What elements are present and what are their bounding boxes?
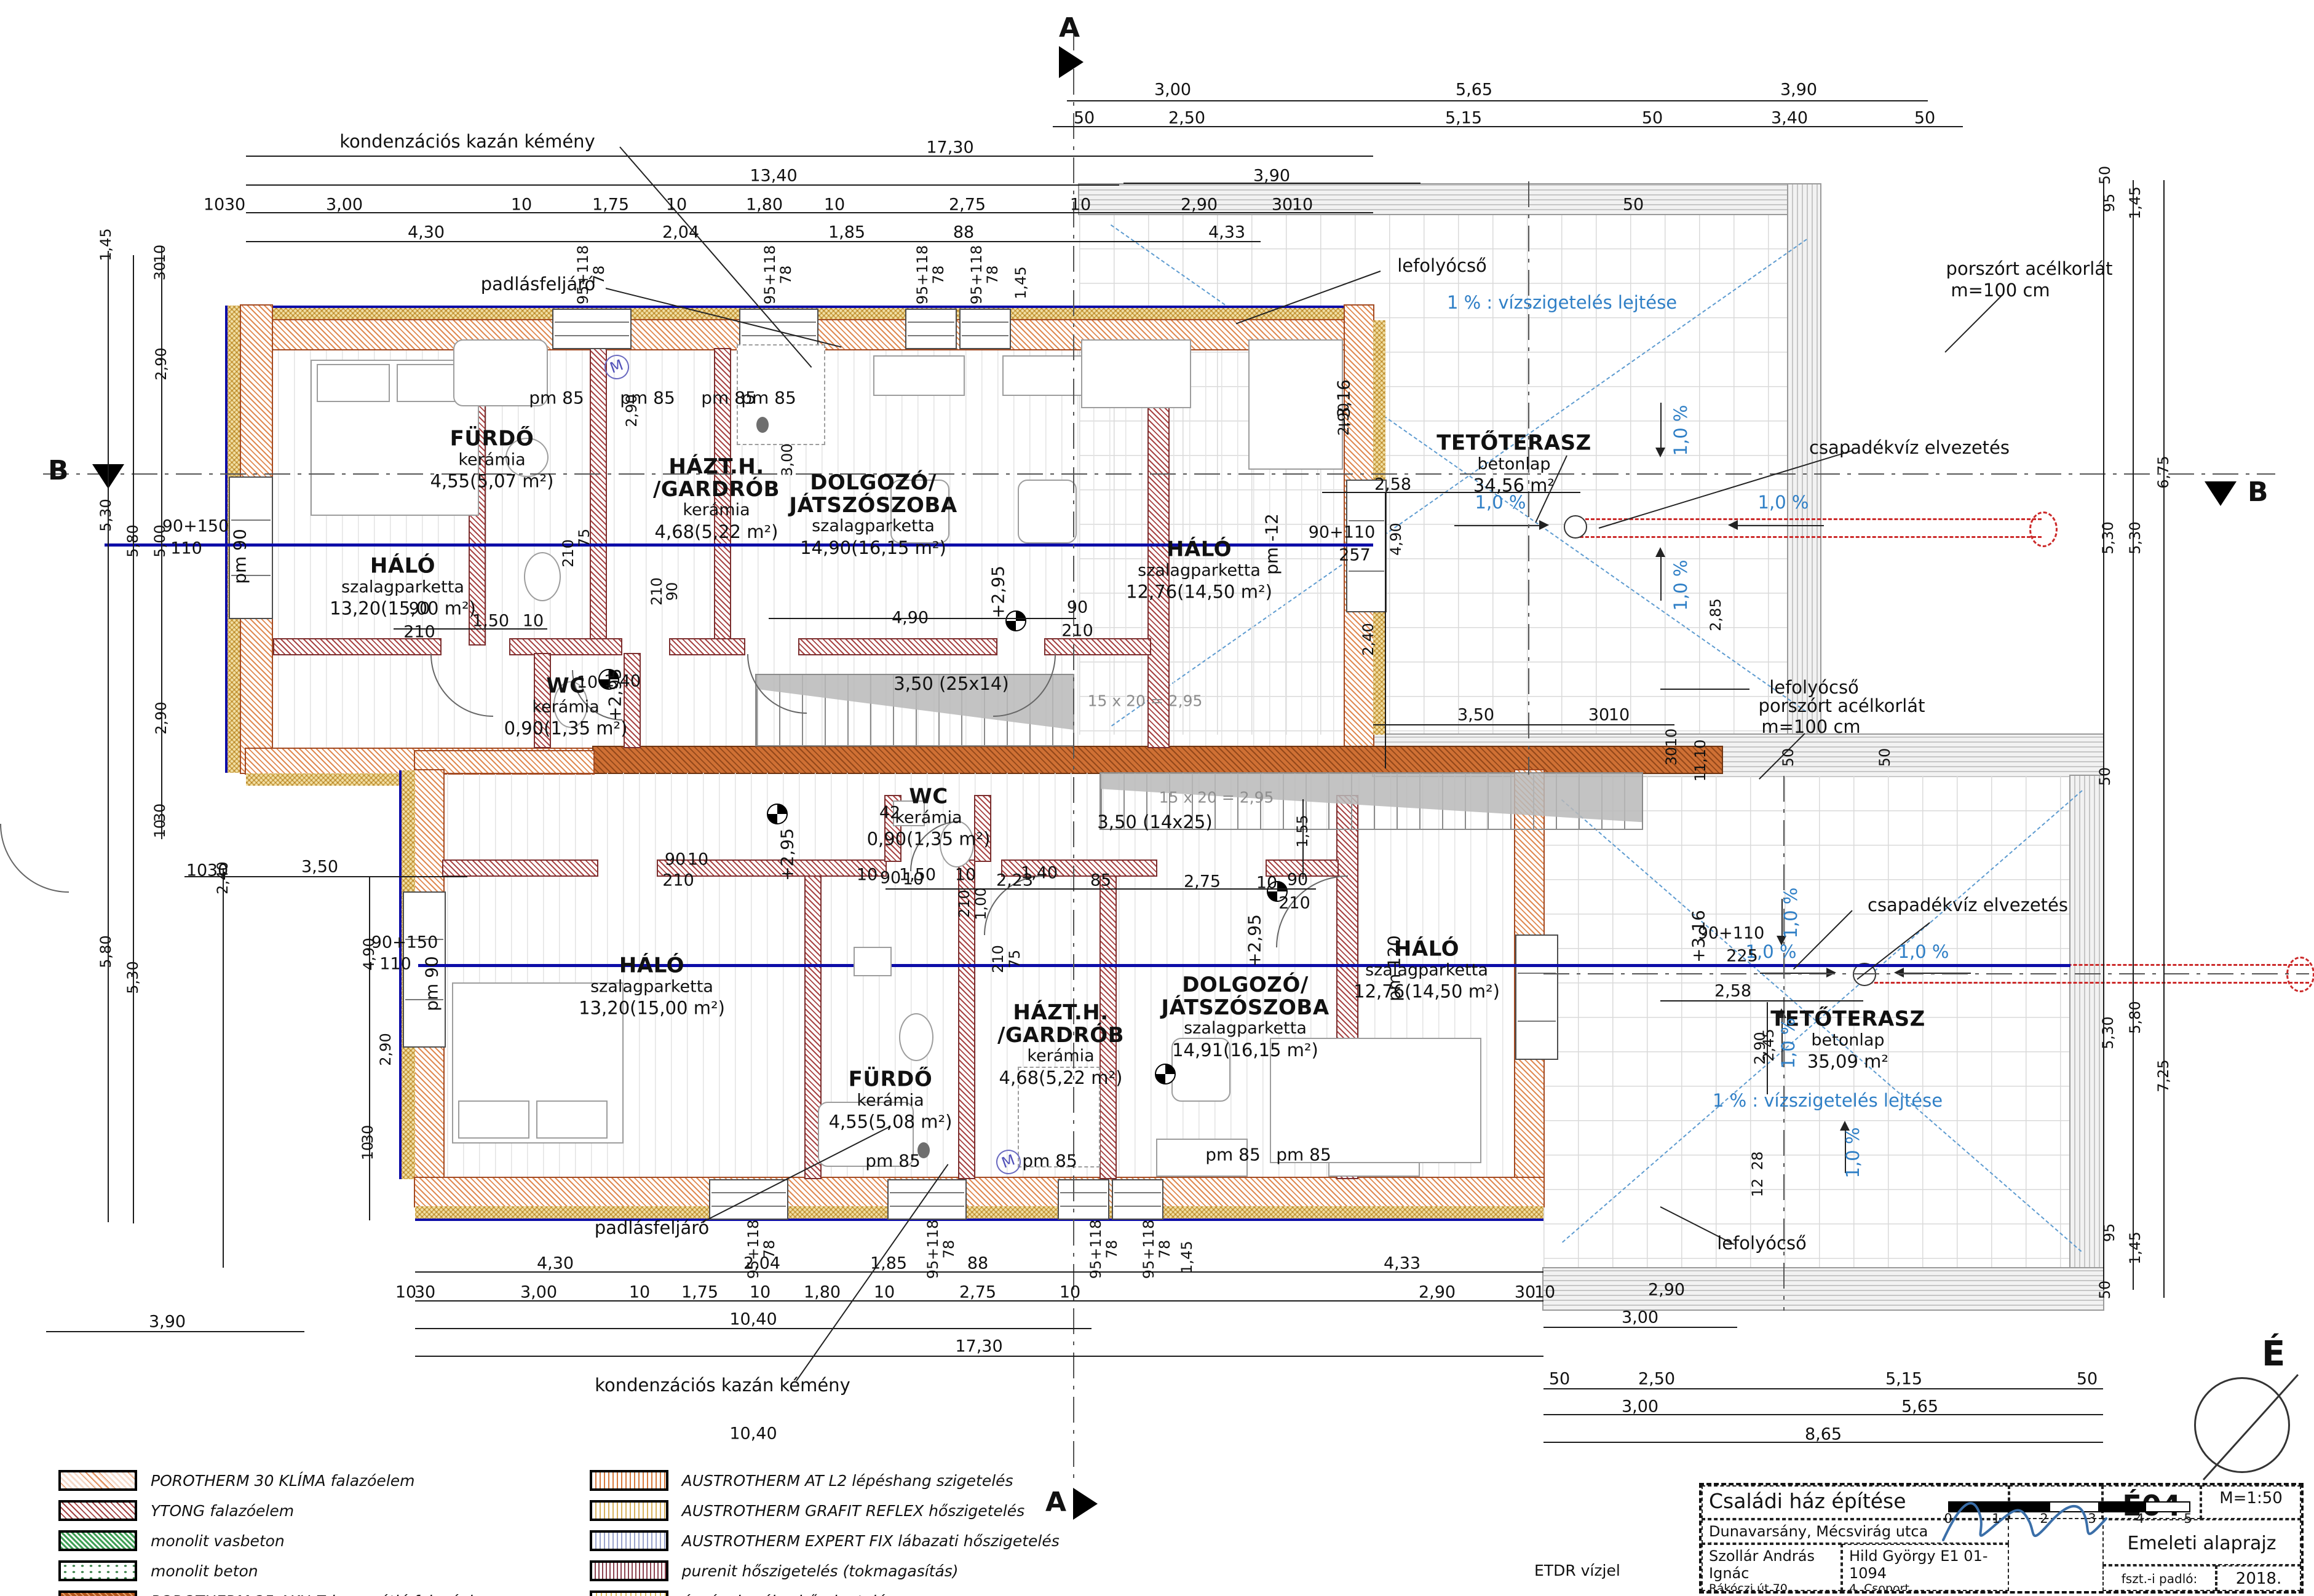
anno-label: lefolyócső <box>1769 677 1859 698</box>
dimension-label: 75 <box>1006 950 1023 969</box>
dimension-label: 1,45 <box>97 228 114 261</box>
dimension-label: 1,85 <box>828 223 865 242</box>
dimension-label: 30 <box>359 1125 376 1144</box>
dimension-label: 10 <box>511 196 532 215</box>
anno-label: 3,50 (25x14) <box>894 673 1008 694</box>
arr <box>1655 448 1665 457</box>
tri <box>1073 1488 1098 1520</box>
dimension-label: 78 <box>1156 1240 1173 1259</box>
blue-label: 1,0 % <box>1758 492 1809 513</box>
tri <box>1059 46 1084 78</box>
hl <box>246 184 1119 186</box>
section-marker-a-top: A <box>1059 12 1080 44</box>
legend-swatch-expertfix <box>590 1530 668 1551</box>
anno-label: kondenzációs kazán kémény <box>339 131 595 152</box>
lg-col: AUSTROTHERM AT L2 lépéshang szigetelésAU… <box>590 1468 1060 1596</box>
legend-item: monolit vasbeton <box>58 1528 497 1553</box>
room-label: DOLGOZÓ/ JÁTSZÓSZOBAszalagparketta14,91(… <box>1161 974 1329 1061</box>
dimension-label: 1,80 <box>804 1283 841 1302</box>
blue-label: 1,0 % <box>1842 1128 1863 1179</box>
dimension-label: 10 <box>1060 1283 1080 1302</box>
dimension-label: 30 <box>151 262 168 281</box>
scalebar-number: 1 <box>1992 1511 2000 1526</box>
scale-bar <box>1948 1501 2190 1512</box>
dimension-label: 3,00 <box>1622 1308 1658 1327</box>
sheet-title: Emeleti alaprajz <box>2102 1519 2301 1565</box>
pm-label: pm 85 <box>1205 1145 1261 1165</box>
legend-label: purenit hőszigetelés (tokmagasítás) <box>682 1562 959 1580</box>
dimension-label: 10 <box>359 1142 376 1161</box>
gray-label: 15 x 20 = 2,95 <box>1159 789 1274 807</box>
dimension-label: 5,30 <box>124 961 141 994</box>
arrln-v <box>1660 556 1662 601</box>
survey-marker <box>767 804 788 824</box>
blue-label: 1 % : vízszigetelés lejtése <box>1713 1090 1943 1111</box>
dimension-label: 10 <box>151 820 168 839</box>
dimension-label: 50 <box>1914 109 1935 128</box>
dimension-label: 95+118 <box>914 245 931 304</box>
legend-swatch-atl2 <box>590 1470 668 1491</box>
arrln-h <box>1738 525 1824 526</box>
dimension-label: 17,30 <box>926 138 973 157</box>
pm-label: pm 90 <box>230 529 250 584</box>
dimension-label: 1,45 <box>2126 186 2144 219</box>
watermark-label: ETDR vízjel <box>1534 1562 1620 1579</box>
dimension-label: 2,85 <box>1707 598 1724 631</box>
arr <box>1539 520 1549 530</box>
dimension-label: 2,90 <box>153 347 170 380</box>
dimension-label: 4,30 <box>537 1254 574 1273</box>
blue-label: 1,0 % <box>1780 888 1801 939</box>
architect-firm: 4. Csoport Építészműterem Kft. <box>1849 1582 2002 1591</box>
room-area: 4,68(5,22 m²) <box>653 521 780 543</box>
pm-label: pm 85 <box>529 388 584 408</box>
client-info: Szollár András Ignác Rákóczi út 70. Buda… <box>1702 1544 1842 1591</box>
architect-info: Hild György E1 01-1094 4. Csoport Építés… <box>1842 1544 2009 1591</box>
anno-label: porszórt acélkorlát <box>1946 258 2113 279</box>
legend-label: AUSTROTHERM EXPERT FIX lábazati hősziget… <box>682 1532 1060 1550</box>
dimension-label: 90 <box>1287 871 1308 890</box>
dimension-label: 2,50 <box>1168 109 1205 128</box>
room-finish: szalagparketta <box>789 516 957 536</box>
dimension-label: 10 <box>903 870 924 889</box>
dimension-label: 30 <box>1272 196 1293 215</box>
wardrobe <box>1248 339 1343 470</box>
vl <box>1385 492 1386 768</box>
dimension-label: 95+118 <box>924 1220 941 1279</box>
room-name: HÁLÓ <box>1126 538 1272 561</box>
redln <box>1863 982 2309 984</box>
sheet-date: 2018. 12. 17. <box>2216 1565 2301 1591</box>
dimension-label: 50 <box>1780 748 1797 767</box>
terrace-drain <box>1564 515 1587 539</box>
room-name: FÜRDŐ <box>430 427 554 450</box>
sheet-scale: M=1:50 <box>2201 1485 2301 1519</box>
room-label: HÁLÓszalagparketta13,20(15,00 m²) <box>579 954 725 1019</box>
bluln <box>415 1219 1543 1221</box>
arrln-v <box>1660 403 1662 449</box>
anno-label: csapadékvíz elvezetés <box>1809 437 2010 458</box>
chair <box>1018 480 1077 543</box>
dimension-label: 210 <box>662 871 694 890</box>
dimension-label: 2,90 <box>153 701 170 734</box>
desk <box>873 355 965 396</box>
legend-item: AUSTROTHERM EXPERT FIX lábazati hősziget… <box>590 1528 1060 1553</box>
dimension-label: 1,55 <box>1294 815 1311 847</box>
dimension-label: 1,00 <box>972 887 989 920</box>
blue-label: 1,0 % <box>1898 941 1949 962</box>
dimension-label: 5,80 <box>124 524 141 557</box>
dimension-label: 10 <box>874 1283 895 1302</box>
dimension-label: 1,75 <box>592 196 629 215</box>
blue-label: 1 % : vízszigetelés lejtése <box>1447 292 1677 313</box>
pm-label: pm 120 <box>1384 935 1405 1001</box>
room-label: HÁZT.H. /GARDRÓBkerámia4,68(5,22 m²) <box>653 456 780 543</box>
dimension-label: 78 <box>930 266 947 285</box>
dimension-label: 10 <box>1256 874 1277 893</box>
dimension-label: 75 <box>576 529 593 548</box>
dimension-label: 90+110 <box>1309 523 1376 542</box>
dimension-label: 3,50 <box>1457 706 1494 725</box>
dimension-label: 28 <box>1749 1152 1766 1171</box>
room-label: FÜRDŐkerámia4,55(5,07 m²) <box>430 427 554 492</box>
dimension-label: 1,50 <box>472 612 509 631</box>
arr <box>1655 547 1665 557</box>
dimension-label: 90 <box>665 850 686 869</box>
anno-label: lefolyócső <box>1717 1233 1807 1254</box>
legend-label: POROTHERM 25 AKU Z hanggátló falazóelem <box>151 1592 497 1596</box>
scalebar-number: 2 <box>2040 1511 2048 1526</box>
dimension-label: 5,30 <box>2126 521 2144 554</box>
hl <box>1543 1388 2103 1389</box>
legend-item: POROTHERM 30 KLÍMA falazóelem <box>58 1468 497 1493</box>
room-finish: szalagparketta <box>1126 561 1272 580</box>
dimension-label: 2,40 <box>1360 623 1377 655</box>
dimension-label: 2,75 <box>1184 872 1221 891</box>
vl <box>133 255 134 1223</box>
hl <box>246 156 1373 157</box>
dimension-label: 5,30 <box>2099 521 2117 554</box>
dimension-label: 210 <box>560 539 577 567</box>
dimension-label: 5,65 <box>1456 81 1492 100</box>
dimension-label: 3,90 <box>1253 167 1290 186</box>
dimension-label: 88 <box>953 223 974 242</box>
dimension-label: 78 <box>590 266 608 285</box>
north-symbol: É <box>2189 1334 2312 1482</box>
dimension-label: 2,58 <box>1374 475 1411 494</box>
legend-item: POROTHERM 25 AKU Z hanggátló falazóelem <box>58 1589 497 1596</box>
dimension-label: 2,23 <box>996 871 1033 890</box>
dimension-label: 30 <box>1515 1283 1535 1302</box>
room-label: HÁLÓszalagparketta12,76(14,50 m²) <box>1126 538 1272 602</box>
room-label: FÜRDŐkerámia4,55(5,08 m²) <box>829 1068 953 1132</box>
dimension-label: 3,90 <box>149 1313 186 1332</box>
dimension-label: 10 <box>666 196 687 215</box>
room-finish: szalagparketta <box>330 577 476 597</box>
dimension-label: 2,90 <box>1335 403 1352 435</box>
pm-label: pm 85 <box>1022 1151 1077 1171</box>
dimension-label: 3,90 <box>1780 81 1817 100</box>
room-name: HÁZT.H. /GARDRÓB <box>653 456 780 500</box>
dimension-label: 3,00 <box>520 1283 557 1302</box>
dimension-label: 4,33 <box>1384 1254 1420 1273</box>
arr <box>1728 520 1738 530</box>
anno-label: kondenzációs kazán kémény <box>595 1375 850 1396</box>
room-finish: kerámia <box>997 1046 1124 1066</box>
dimension-label: 110 <box>170 539 202 558</box>
dimension-label: 50 <box>1642 109 1663 128</box>
room-finish: szalagparketta <box>1161 1019 1329 1038</box>
scalebar-number: 5 <box>2184 1511 2192 1526</box>
section-line-b <box>43 473 2275 475</box>
dimension-label: 4,33 <box>1208 223 1245 242</box>
dimension-label: 90 <box>1067 598 1088 617</box>
dimension-label: 2,90 <box>623 394 640 427</box>
legend-label: ásványi szálas hőszigetelés <box>682 1592 894 1596</box>
wall-y <box>799 639 996 654</box>
window <box>905 309 957 349</box>
pm-label: pm 85 <box>865 1151 921 1171</box>
dimension-label: 10 <box>629 1283 650 1302</box>
legend-item: AUSTROTHERM AT L2 lépéshang szigetelés <box>590 1468 1060 1493</box>
dimension-label: 6,75 <box>2155 456 2172 488</box>
dimension-label: 1,40 <box>604 672 641 691</box>
client-name: Szollár András Ignác <box>1709 1547 1815 1582</box>
dimension-label: 10 <box>1609 706 1630 725</box>
hl <box>1660 1000 1863 1001</box>
dimension-label: 1,85 <box>870 1254 907 1273</box>
room-name: DOLGOZÓ/ JÁTSZÓSZOBA <box>789 472 957 516</box>
blue-label: 1,0 % <box>1670 405 1691 456</box>
lower-terrace-parapet-bottom <box>1543 1268 2103 1310</box>
room-name: HÁLÓ <box>330 555 476 577</box>
room-label: TETŐTERASZbetonlap34,56 m² <box>1436 432 1591 496</box>
dimension-label: 2,90 <box>1419 1283 1456 1302</box>
pm-label: pm 85 <box>741 388 796 408</box>
window <box>1058 1179 1109 1220</box>
legend-swatch-purenit <box>590 1560 668 1581</box>
dimension-label: 78 <box>1103 1240 1120 1259</box>
dimension-label: 3,40 <box>1771 109 1808 128</box>
furn <box>536 1100 608 1139</box>
dimension-label: 110 <box>379 955 411 974</box>
dimension-label: 95+118 <box>1087 1220 1104 1279</box>
lower-wing-wall-bottom <box>415 1178 1543 1206</box>
dimension-label: 1,45 <box>1178 1241 1195 1273</box>
furn <box>458 1100 529 1139</box>
dimension-label: 210 <box>648 577 665 606</box>
scalebar-number: 0 <box>1944 1511 1952 1526</box>
room-finish: kerámia <box>829 1091 953 1110</box>
lg-col: POROTHERM 30 KLÍMA falazóelemYTONG falaz… <box>58 1468 497 1596</box>
dimension-label: 13,40 <box>750 167 797 186</box>
room-area: 4,68(5,22 m²) <box>997 1067 1124 1089</box>
section-line-a <box>1073 25 1074 1482</box>
dimension-label: 8,65 <box>1805 1425 1842 1444</box>
legend-swatch-beton <box>58 1560 137 1581</box>
chimney-dot <box>756 417 769 433</box>
dimension-label: 5,15 <box>1445 109 1482 128</box>
dimension-label: 10 <box>857 866 878 885</box>
anno-label: porszórt acélkorlát <box>1759 695 1925 716</box>
room-name: HÁLÓ <box>1353 938 1500 960</box>
level-label: +2,95 <box>988 566 1008 618</box>
dimension-label: 10 <box>186 861 207 880</box>
room-area: 4,55(5,08 m²) <box>829 1110 953 1132</box>
hl <box>246 241 1261 242</box>
room-area: 12,76(14,50 m²) <box>1353 980 1500 1002</box>
dimension-label: 5,30 <box>2099 1016 2117 1049</box>
pm-label: pm -12 <box>1262 513 1282 575</box>
drain-marker-red <box>2029 512 2058 547</box>
toilet <box>899 1013 933 1061</box>
level-note: fszt.-i padló: +-0,00 = Bf <box>2102 1565 2216 1591</box>
room-label: HÁZT.H. /GARDRÓBkerámia4,68(5,22 m²) <box>997 1001 1124 1089</box>
dimension-label: 5,65 <box>1901 1397 1938 1416</box>
dimension-label: 3,50 <box>301 858 338 877</box>
legend-item: YTONG falazóelem <box>58 1498 497 1523</box>
dimension-label: 10 <box>577 673 598 692</box>
section-marker-b-left: B <box>48 455 69 486</box>
dimension-label: 2,75 <box>949 196 986 215</box>
dimension-label: 10 <box>151 245 168 264</box>
wall-y <box>1045 639 1150 654</box>
dimension-label: 10 <box>824 196 845 215</box>
dimension-label: 10 <box>955 866 976 885</box>
dimension-label: 10 <box>395 1283 416 1302</box>
dimension-label: 95+118 <box>761 245 779 304</box>
dimension-label: 50 <box>2096 1281 2114 1300</box>
project-location: Dunavarsány, Mécsvirág utca hrsz.:4091/2 <box>1702 1519 2009 1544</box>
dimension-label: 225 <box>1726 947 1758 966</box>
dimension-label: 7,25 <box>2155 1059 2172 1092</box>
dimension-label: 10,40 <box>729 1310 777 1329</box>
dimension-label: 78 <box>984 266 1001 285</box>
dimension-label: 10 <box>1534 1283 1555 1302</box>
anno-label: csapadékvíz elvezetés <box>1868 895 2068 915</box>
room-label: HÁLÓszalagparketta12,76(14,50 m²) <box>1353 938 1500 1002</box>
tri <box>2205 481 2237 506</box>
legend-label: AUSTROTHERM GRAFIT REFLEX hőszigetelés <box>682 1502 1025 1520</box>
dimension-label: 10 <box>750 1283 771 1302</box>
pm-label: pm 85 <box>1276 1145 1331 1165</box>
dimension-label: 78 <box>777 266 794 285</box>
room-name: FÜRDŐ <box>829 1068 953 1091</box>
room-name: DOLGOZÓ/ JÁTSZÓSZOBA <box>1161 974 1329 1019</box>
legend-item: monolit beton <box>58 1558 497 1583</box>
redln <box>1574 518 2042 520</box>
dimension-label: 1,45 <box>1012 266 1029 299</box>
wall-y <box>670 639 744 654</box>
dimension-label: 90+150 <box>371 933 438 952</box>
dimension-label: 257 <box>1339 546 1371 565</box>
dimension-label: 17,30 <box>955 1337 1002 1356</box>
anno-label: 3,50 (14x25) <box>1097 812 1212 832</box>
room-label: DOLGOZÓ/ JÁTSZÓSZOBAszalagparketta14,90(… <box>789 472 957 559</box>
room-name: TETŐTERASZ <box>1436 432 1591 454</box>
dimension-label: 210 <box>989 945 1007 973</box>
legend-item: purenit hőszigetelés (tokmagasítás) <box>590 1558 1060 1583</box>
dimension-label: 1,75 <box>681 1283 718 1302</box>
redln <box>1574 536 2042 538</box>
legend-swatch-ytong <box>58 1500 137 1521</box>
dimension-label: 95+118 <box>574 245 592 304</box>
room-finish: betonlap <box>1436 454 1591 474</box>
dimension-label: 50 <box>1623 196 1644 215</box>
room-label: HÁLÓszalagparketta13,20(15,00 m²) <box>330 555 476 619</box>
dimension-label: 10 <box>687 850 708 869</box>
room-name: HÁZT.H. /GARDRÓB <box>997 1001 1124 1046</box>
dimension-label: 2,90 <box>1181 196 1218 215</box>
dimension-label: 10 <box>523 612 544 631</box>
dimension-label: 2,75 <box>959 1283 996 1302</box>
desk <box>1002 355 1094 396</box>
dimension-label: 2,90 <box>1648 1281 1685 1300</box>
dimension-label: 10 <box>204 196 224 215</box>
arrln-h <box>1454 525 1540 526</box>
room-area: 13,20(15,00 m²) <box>330 597 476 619</box>
legend-swatch-vasbeton <box>58 1530 137 1551</box>
legend-label: POROTHERM 30 KLÍMA falazóelem <box>151 1472 415 1490</box>
window <box>1515 934 1558 1060</box>
legend-swatch-asvanyi <box>590 1590 668 1596</box>
materials-legend: POROTHERM 30 KLÍMA falazóelemYTONG falaz… <box>58 1468 1060 1596</box>
room-area: 12,76(14,50 m²) <box>1126 580 1272 602</box>
dimension-label: 1,80 <box>746 196 783 215</box>
dimension-label: 50 <box>2096 767 2114 786</box>
dimension-label: 5,15 <box>1885 1370 1922 1389</box>
dimension-label: 210 <box>1278 894 1310 913</box>
anno-label: m=100 cm <box>1761 716 1860 737</box>
anno-label: lefolyócső <box>1397 255 1487 276</box>
dimension-label: 10,40 <box>729 1424 777 1444</box>
dimension-label: 3,00 <box>326 196 363 215</box>
ldr <box>1660 689 1749 690</box>
window <box>887 1179 967 1220</box>
dimension-label: 2,90 <box>1751 1032 1769 1064</box>
dimension-label: 78 <box>940 1240 957 1259</box>
dimension-label: 95 <box>2101 194 2118 213</box>
dimension-label: 30 <box>1663 747 1680 766</box>
dimension-label: 3,00 <box>779 443 796 476</box>
dimension-label: 30 <box>224 196 245 215</box>
lower-terrace-parapet-right <box>2070 776 2103 1310</box>
room-finish: kerámia <box>430 450 554 470</box>
dimension-label: 2,90 <box>377 1033 394 1065</box>
client-address: Rákóczi út 70. Budapest H-1196 <box>1709 1582 1834 1591</box>
legend-swatch-grafit <box>590 1500 668 1521</box>
dimension-label: 5,80 <box>97 935 114 968</box>
scalebar-number: 4 <box>2136 1511 2144 1526</box>
title-block: Családi ház építése Dunavarsány, Mécsvir… <box>1699 1483 2304 1594</box>
legend-label: monolit beton <box>151 1562 258 1580</box>
room-finish: szalagparketta <box>579 977 725 997</box>
wall-y <box>274 639 440 654</box>
dimension-label: 2,04 <box>743 1254 780 1273</box>
dimension-label: 3,00 <box>1154 81 1191 100</box>
vl <box>223 868 224 1268</box>
insul <box>415 1206 1543 1219</box>
dimension-label: 5,30 <box>97 499 114 531</box>
survey-marker <box>1005 610 1026 631</box>
anno-label: m=100 cm <box>1951 280 2050 301</box>
wall-y <box>443 861 597 875</box>
lower-wing-wall-top-left <box>415 751 593 773</box>
ldr <box>1944 295 2002 352</box>
dimension-label: 90 <box>409 599 430 618</box>
vl <box>2163 180 2165 1298</box>
dimension-label: 90 <box>664 582 681 601</box>
